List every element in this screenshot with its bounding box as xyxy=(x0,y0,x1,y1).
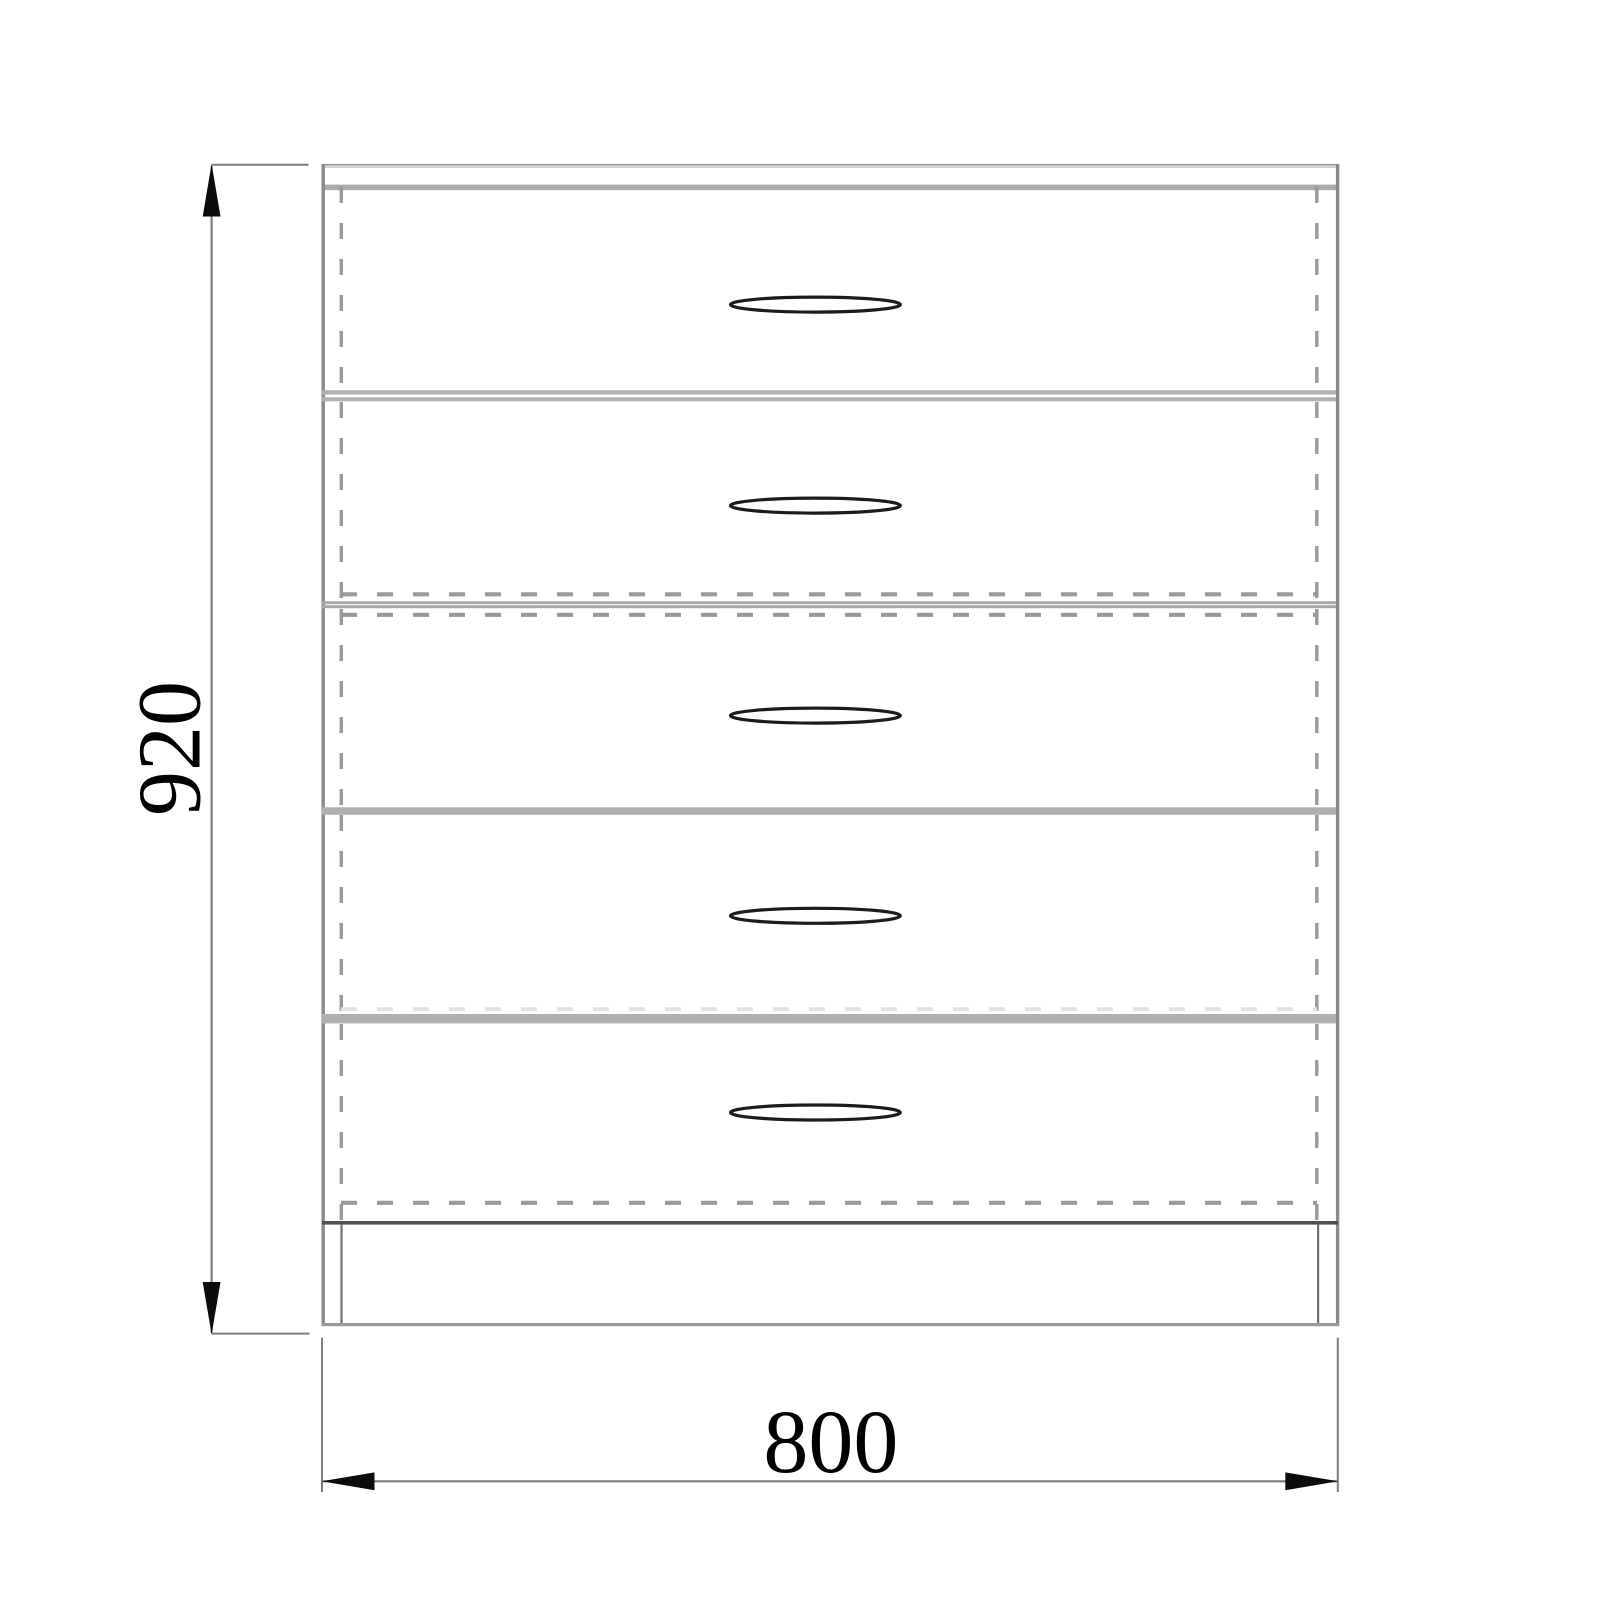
svg-text:920: 920 xyxy=(121,681,220,816)
svg-text:800: 800 xyxy=(763,1393,898,1492)
